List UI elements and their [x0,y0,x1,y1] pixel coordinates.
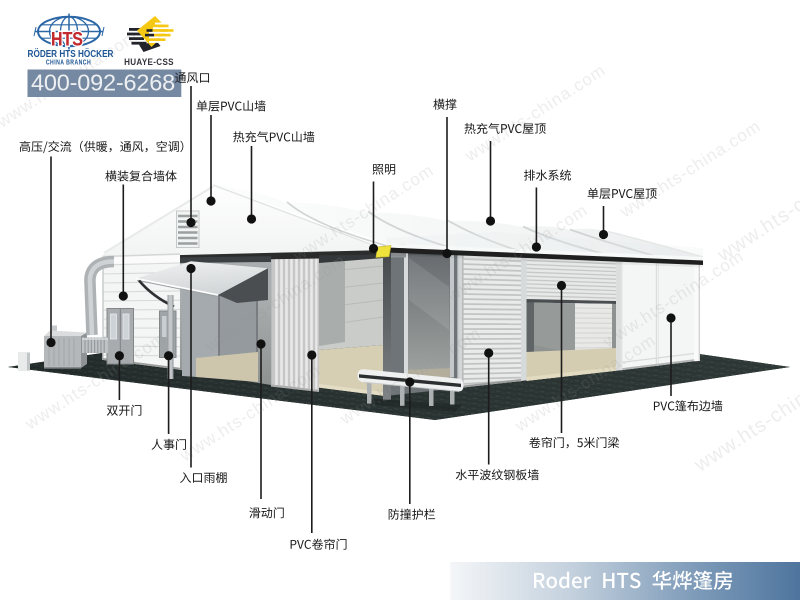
svg-text:RÖDER HTS HÖCKER: RÖDER HTS HÖCKER [28,47,114,59]
svg-text:CHINA BRANCH: CHINA BRANCH [46,59,91,67]
svg-text:400-092-6268: 400-092-6268 [31,70,175,96]
svg-text:HUAYE-CSS: HUAYE-CSS [124,56,174,67]
svg-text:www.hts-china.com: www.hts-china.com [616,116,764,221]
svg-text:www.hts-china.com: www.hts-china.com [461,60,609,165]
svg-text:www.hts-china.com: www.hts-china.com [713,145,800,267]
